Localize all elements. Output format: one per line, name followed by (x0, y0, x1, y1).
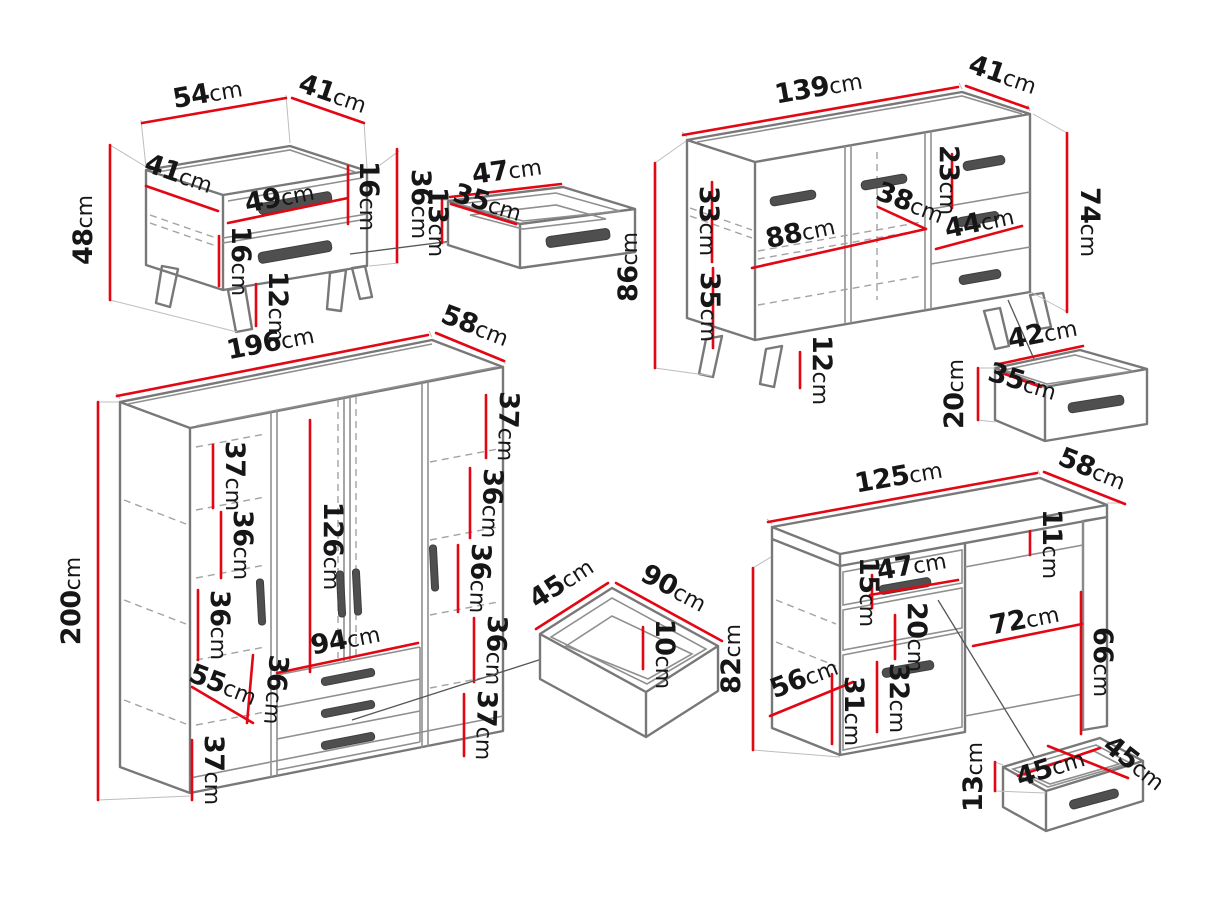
dim-label-top-depth: 41cm (965, 49, 1041, 101)
dim-label-right-section-1: 37cm (491, 391, 524, 462)
wardrobe: 196cm 58cm 200cm 37cm 36cm 36cm 55cm 37c… (56, 299, 524, 805)
diagram-svg: 54cm 41cm 48cm 41cm 49cm 16cm 36cm 16cm … (0, 0, 1214, 911)
pulled-out-drawer-c: 45cm 90cm 10cm (524, 551, 722, 737)
dim-label-right-section-5: 37cm (469, 690, 502, 761)
dim-label-right-section-4: 36cm (479, 615, 512, 686)
dim-label-kneehole-height: 66cm (1087, 627, 1118, 697)
pulled-out-drawer-d: 13cm 45cm 45cm (958, 730, 1171, 831)
nightstand: 54cm 41cm 48cm 41cm 49cm 16cm 36cm 16cm … (68, 68, 436, 341)
dim-label-height-left: 86cm (613, 232, 644, 302)
pulled-out-drawer-a: 47cm 35cm 13cm (422, 150, 635, 268)
dim-label-height: 82cm (716, 624, 747, 694)
dim-label-height: 10cm (649, 619, 680, 689)
dim-label-height-right: 74cm (1074, 187, 1105, 257)
dim-label-left-section-4: 37cm (198, 735, 229, 805)
dim-label-height: 13cm (958, 742, 989, 812)
dim-label-top-width: 54cm (170, 72, 244, 115)
dim-label-top-drawer-height: 23cm (933, 145, 964, 215)
dim-label-door-height: 32cm (883, 663, 914, 733)
dim-label-height: 200cm (56, 557, 87, 645)
dim-label-left-section-2: 36cm (227, 510, 258, 580)
pulled-out-drawer-b: 42cm 35cm 20cm (939, 312, 1147, 441)
dim-label-door-height: 126cm (317, 502, 348, 590)
dim-label-height: 48cm (68, 195, 99, 265)
wardrobe-body (120, 340, 503, 793)
dim-label-kneehole-width: 72cm (987, 598, 1062, 642)
dim-label-left-section-3: 36cm (204, 590, 235, 660)
dim-label-leg-height: 12cm (806, 335, 837, 405)
dim-label-left-section-1: 37cm (219, 441, 250, 511)
dim-label-top-drawer-height: 16cm (353, 161, 384, 231)
dim-label-height: 20cm (939, 359, 970, 429)
dim-label-lower-inner: 35cm (694, 272, 725, 342)
dim-label-top-width: 139cm (772, 65, 864, 111)
dim-label-height: 13cm (422, 187, 453, 257)
dim-label-drawer-height: 15cm (853, 557, 884, 627)
desk: 125cm 58cm 82cm 47cm 15cm 20cm 11cm 72cm… (716, 442, 1130, 757)
dim-label-bottom-drawer-height: 16cm (225, 226, 256, 296)
dim-label-apron-height: 11cm (1036, 509, 1067, 579)
dim-label-lower-side-height: 31cm (838, 676, 869, 746)
dim-label-niche-height: 20cm (901, 602, 932, 672)
furniture-dimensions-diagram: 54cm 41cm 48cm 41cm 49cm 16cm 36cm 16cm … (0, 0, 1214, 911)
dim-label-upper-inner: 33cm (693, 186, 724, 256)
